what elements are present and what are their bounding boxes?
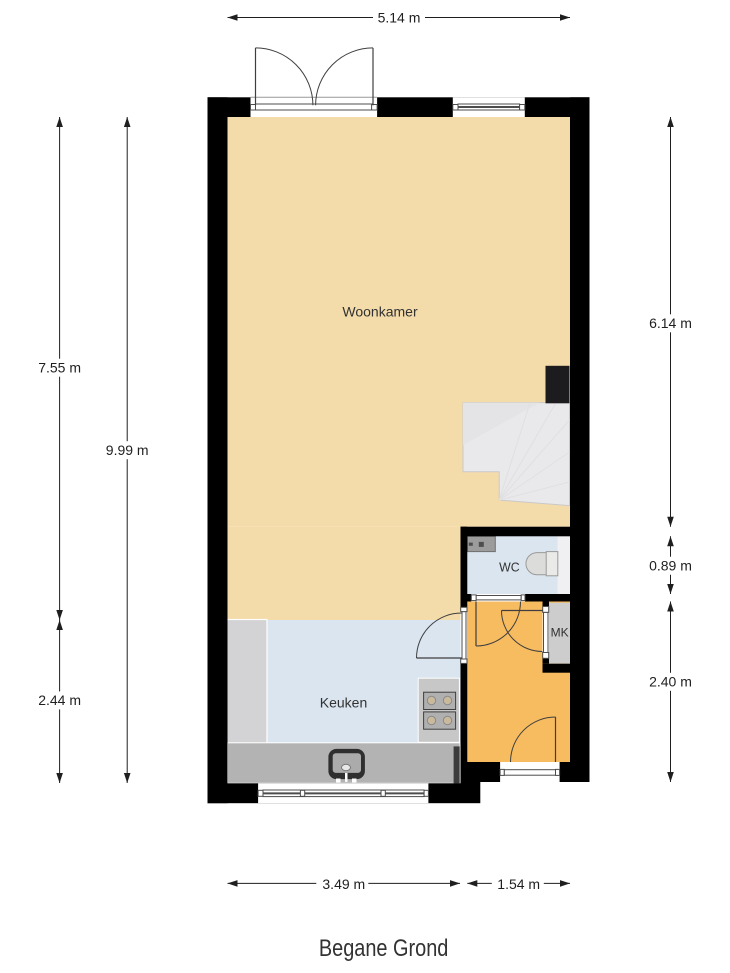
svg-text:2.40 m: 2.40 m [649, 674, 692, 690]
svg-text:6.14 m: 6.14 m [649, 315, 692, 331]
svg-text:3.49 m: 3.49 m [322, 876, 365, 892]
svg-text:9.99 m: 9.99 m [106, 442, 149, 458]
svg-text:5.14 m: 5.14 m [378, 9, 421, 25]
svg-text:2.44 m: 2.44 m [38, 692, 81, 708]
svg-text:Begane Grond: Begane Grond [319, 935, 449, 962]
svg-text:7.55 m: 7.55 m [38, 360, 81, 376]
svg-text:Keuken: Keuken [320, 694, 367, 710]
svg-text:Woonkamer: Woonkamer [342, 303, 418, 319]
svg-text:0.89 m: 0.89 m [649, 558, 692, 574]
svg-text:WC: WC [499, 559, 520, 574]
svg-text:MK: MK [551, 625, 569, 639]
svg-text:1.54 m: 1.54 m [497, 876, 540, 892]
